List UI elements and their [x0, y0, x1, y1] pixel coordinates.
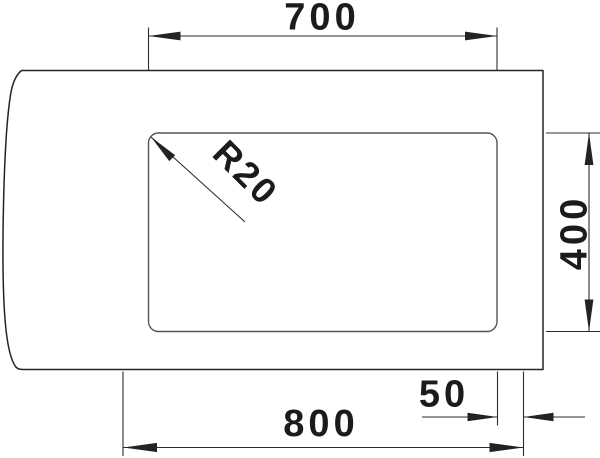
dimension-edge-offset: 50 — [419, 372, 585, 457]
arrowhead — [585, 133, 594, 165]
dimension-cutout-width: 700 — [149, 0, 498, 70]
sink-cutout-drawing: 700 400 R20 50 — [0, 0, 600, 458]
arrowhead — [524, 413, 554, 421]
dim-label-400: 400 — [554, 195, 596, 270]
arrowhead — [149, 32, 181, 41]
dim-label-50: 50 — [419, 374, 469, 416]
arrowhead — [123, 443, 157, 452]
arrowhead — [585, 300, 594, 332]
dimension-cutout-height: 400 — [546, 133, 600, 332]
dim-label-700: 700 — [284, 0, 359, 39]
cutout-outline — [149, 133, 498, 332]
technical-drawing-canvas: 700 400 R20 50 — [0, 0, 600, 458]
arrowhead — [490, 443, 524, 452]
arrowhead — [465, 32, 497, 41]
dim-label-800: 800 — [283, 403, 358, 445]
arrowhead — [468, 413, 498, 421]
